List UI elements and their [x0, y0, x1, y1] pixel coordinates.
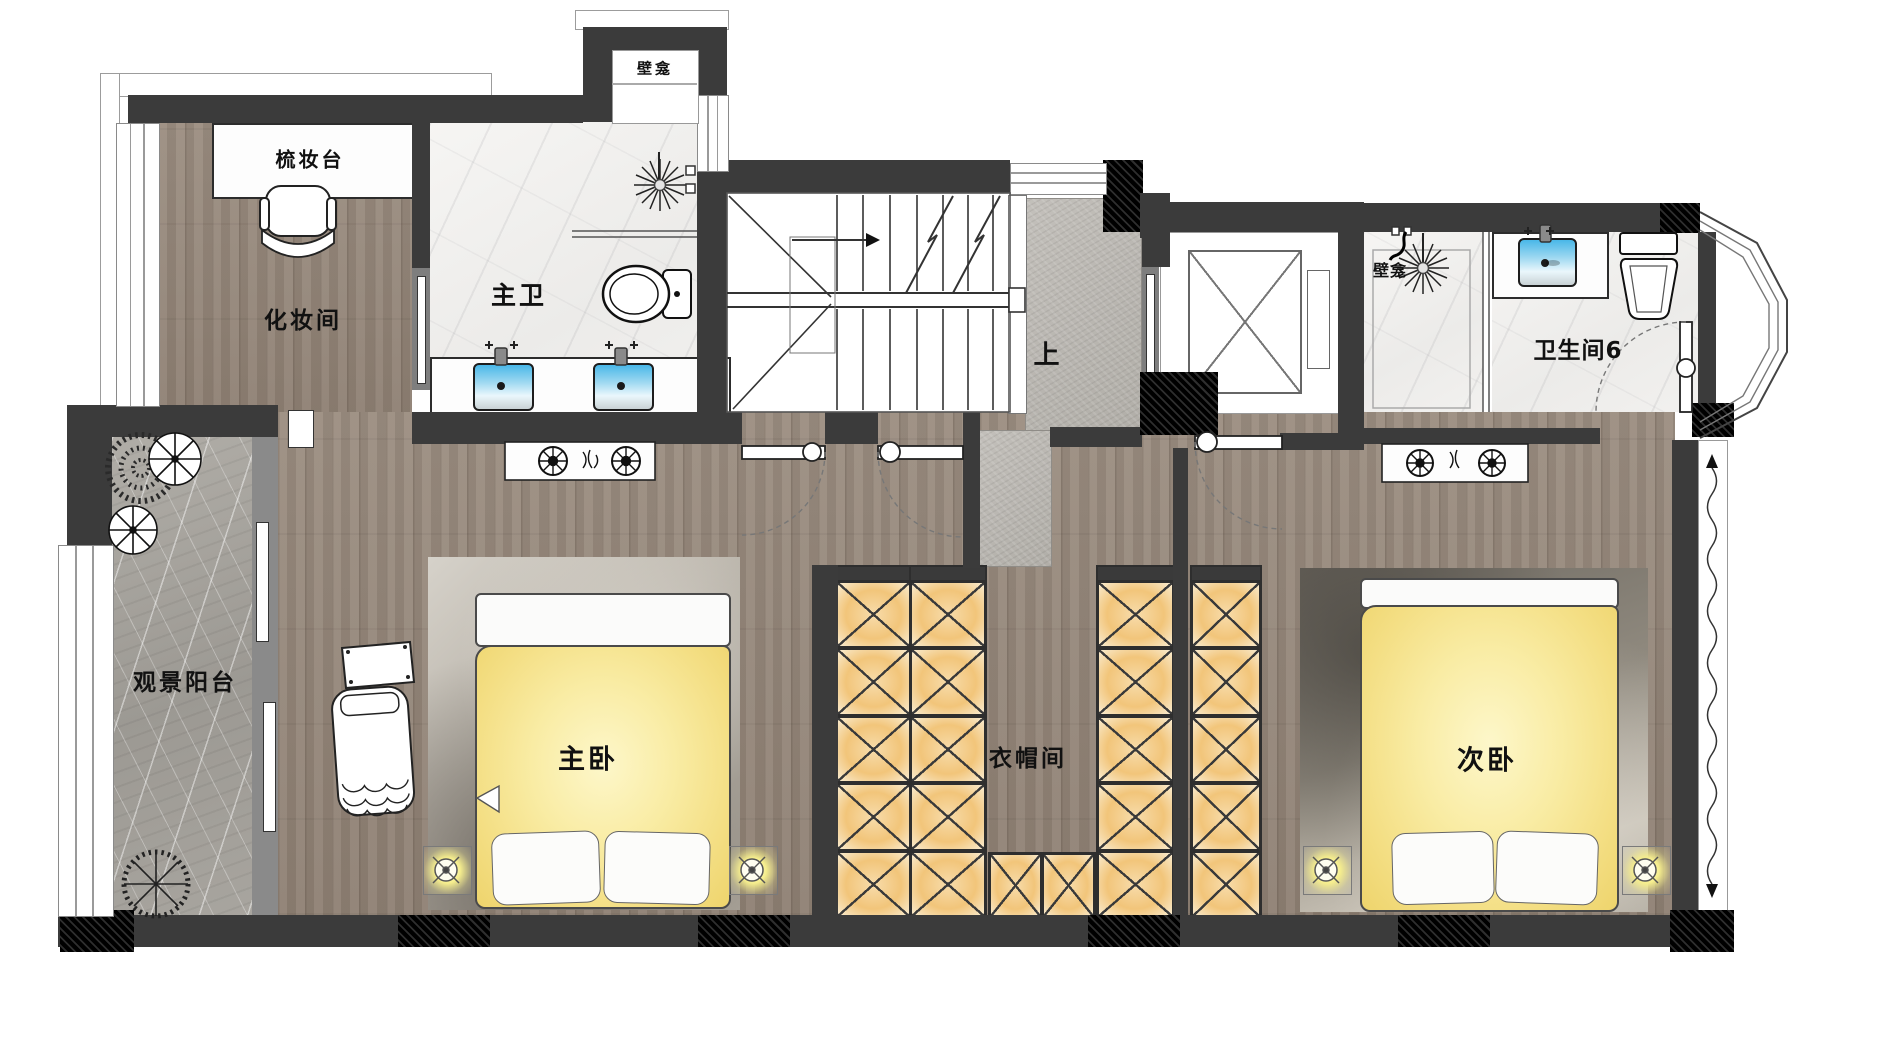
pocket-door-leaf [1146, 274, 1155, 386]
structural-column [1670, 910, 1734, 952]
bed-throw [1391, 831, 1495, 906]
sink [1518, 238, 1577, 287]
wall-corridor-left [963, 448, 980, 568]
wardrobe-column [835, 565, 912, 919]
pocket-door-leaf [417, 276, 426, 384]
stone-floor-corridor [975, 430, 1052, 567]
structural-column [1398, 915, 1490, 947]
room-label-balcony: 观景阳台 [133, 663, 237, 697]
exterior-sill [100, 73, 492, 97]
structural-column [1140, 372, 1218, 435]
room-label-niche-top: 壁龛 [637, 58, 673, 79]
bed-throw [491, 830, 601, 906]
nightstand-downlight [729, 846, 778, 895]
wall-stair-left [697, 170, 727, 412]
wall-niche-step [1367, 215, 1415, 232]
nightstand-downlight [1622, 846, 1671, 895]
sliding-door-leaf [256, 522, 269, 642]
room-label-stairs-up: 上 [1033, 335, 1062, 372]
wall-stub [963, 412, 980, 448]
wall [128, 95, 583, 123]
structural-column [398, 915, 490, 947]
wall-closet-left [812, 565, 838, 915]
wall [412, 123, 430, 268]
room-label-dressing-table: 梳妆台 [276, 144, 345, 173]
balcony-partition [252, 437, 278, 915]
wall [1142, 232, 1170, 267]
elevator-counterweight [1307, 270, 1330, 369]
wall-bedroom2-right [1672, 440, 1698, 915]
room-label-second-bedroom: 次卧 [1457, 739, 1517, 778]
wall [1338, 202, 1364, 435]
structural-column [1660, 203, 1700, 233]
room-label-bathroom6: 卫生间6 [1533, 331, 1622, 365]
stairwell-floor [727, 193, 1010, 412]
curtain-strip [1698, 440, 1728, 917]
wardrobe-column [1190, 565, 1262, 919]
room-label-master-bedroom: 主卧 [558, 738, 618, 777]
wall-bath6-right [1698, 232, 1716, 404]
structural-column [1692, 403, 1734, 437]
wall-balcony-top [67, 405, 278, 437]
wall [1280, 433, 1364, 450]
room-label-makeup-room: 化妆间 [264, 301, 342, 335]
structural-column [698, 915, 790, 947]
room-label-shower-niche: 壁龛 [1373, 257, 1407, 281]
wall-elevator-top [1160, 202, 1345, 232]
structural-column [1103, 160, 1143, 232]
window [116, 123, 160, 407]
bed-throw [1495, 830, 1599, 906]
wardrobe-column [909, 565, 987, 919]
sink [593, 363, 654, 411]
window [1010, 163, 1107, 195]
stone-floor-hall [1025, 198, 1142, 432]
room-label-closet: 衣帽间 [989, 739, 1067, 773]
structural-column [1088, 915, 1180, 947]
sliding-door-leaf [263, 702, 276, 832]
bed-headboard-master [475, 593, 731, 647]
bed-throw [603, 831, 711, 906]
wall-closet-divider [1173, 448, 1188, 915]
stair-hall-partition [1008, 195, 1027, 414]
door-leaf-small [288, 410, 314, 448]
window [697, 95, 729, 172]
nightstand-downlight [423, 846, 472, 895]
window [58, 545, 114, 917]
floorplan: 壁龛 梳妆台 化妆间 主卫 上 壁龛 卫生间6 观景阳台 主卧 衣帽间 次卧 [0, 0, 1889, 1064]
wall [1050, 427, 1142, 447]
wall-bath6-bottom [1363, 428, 1600, 444]
wardrobe-column [1096, 565, 1175, 919]
wall-stair-top [700, 160, 1010, 193]
sink [473, 363, 534, 411]
wall-main-horizontal [412, 412, 742, 444]
room-label-master-bath: 主卫 [491, 276, 547, 312]
wardrobe-bottom-cells [988, 852, 1096, 919]
niche-shelf-line [612, 83, 697, 85]
nightstand-downlight [1303, 846, 1352, 895]
wall [67, 437, 112, 545]
wall-stub [825, 412, 878, 444]
